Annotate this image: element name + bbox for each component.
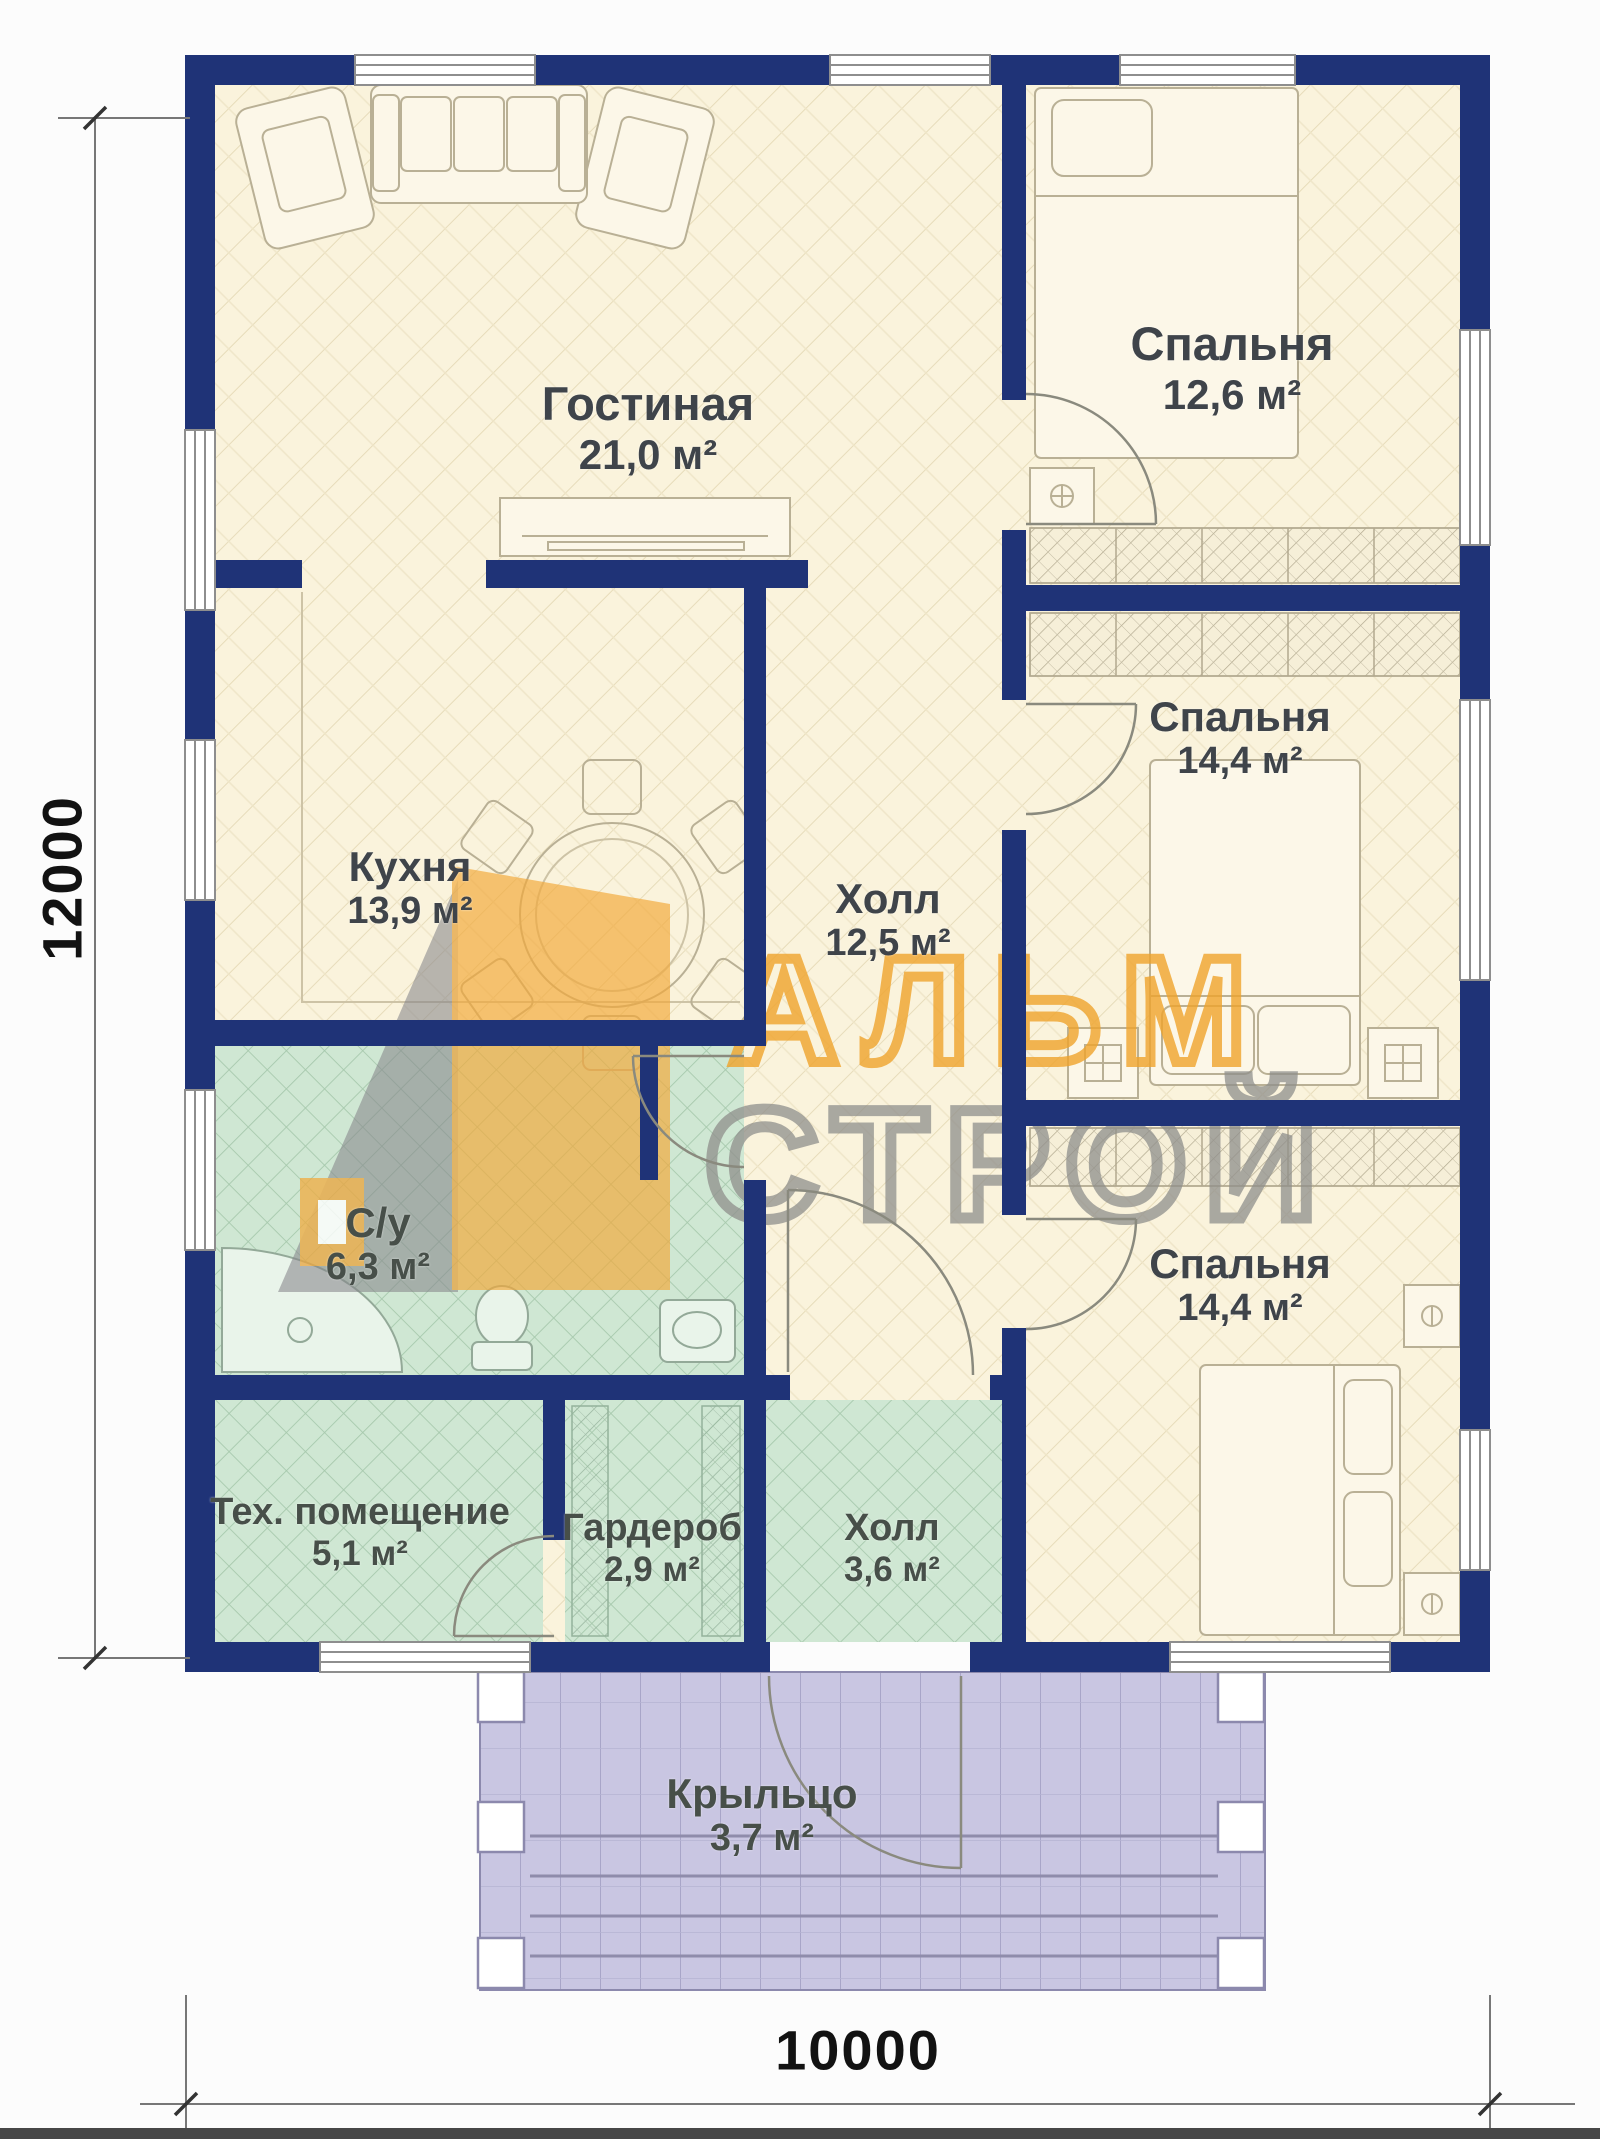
room-label-porch: Крыльцо 3,7 м² — [666, 1770, 857, 1860]
room-label-hall2: Холл 3,6 м² — [844, 1507, 940, 1589]
logo-mark — [452, 866, 670, 1290]
room-name: Тех. помещение — [210, 1491, 510, 1534]
page-edge-rule — [0, 2128, 1600, 2139]
window — [1170, 1642, 1390, 1672]
window — [1120, 55, 1295, 85]
room-area: 3,6 м² — [844, 1550, 940, 1589]
nightstand-icon — [1404, 1285, 1460, 1347]
closet-strip — [1030, 528, 1460, 583]
room-area: 5,1 м² — [312, 1534, 408, 1573]
room-area: 3,7 м² — [710, 1817, 814, 1860]
toilet-icon — [472, 1286, 532, 1370]
window — [1460, 700, 1490, 980]
room-area: 6,3 м² — [326, 1246, 430, 1289]
room-label-wardrobe: Гардероб 2,9 м² — [562, 1507, 742, 1589]
room-name: Спальня — [1130, 318, 1333, 371]
window — [355, 55, 535, 85]
room-name: С/у — [345, 1199, 410, 1246]
sink-icon — [660, 1300, 735, 1362]
sofa-icon — [371, 85, 587, 203]
room-name: Крыльцо — [666, 1770, 857, 1817]
closet-strip — [1030, 613, 1460, 676]
watermark-line1: АЛЬМ — [730, 926, 1270, 1094]
pillow-icon — [1344, 1492, 1392, 1586]
window — [1460, 1430, 1490, 1570]
room-name: Гостиная — [542, 378, 754, 431]
room-name: Спальня — [1149, 1240, 1330, 1287]
room-area: 12,6 м² — [1163, 371, 1301, 418]
room-area: 12,5 м² — [825, 922, 950, 965]
room-label-bedroom-2: Спальня 14,4 м² — [1149, 693, 1330, 783]
dimension-width-label: 10000 — [775, 2018, 941, 2083]
floor-plan-canvas: АЛЬМ СТРОЙ — [0, 0, 1600, 2139]
nightstand-icon — [1404, 1573, 1460, 1635]
room-label-bedroom-1: Спальня 12,6 м² — [1130, 318, 1333, 418]
room-label-bathroom: С/у 6,3 м² — [326, 1199, 430, 1289]
room-name: Гардероб — [562, 1507, 742, 1550]
window — [185, 430, 215, 610]
room-name: Холл — [844, 1507, 939, 1550]
window — [320, 1642, 530, 1672]
pillow-icon — [1258, 1006, 1350, 1074]
room-area: 13,9 м² — [347, 890, 472, 933]
room-name: Кухня — [349, 843, 472, 890]
room-name: Спальня — [1149, 693, 1330, 740]
room-area: 14,4 м² — [1177, 740, 1302, 783]
room-label-bedroom-3: Спальня 14,4 м² — [1149, 1240, 1330, 1330]
nightstand-icon — [1030, 468, 1094, 524]
dimension-height-label: 12000 — [30, 795, 95, 961]
room-label-tech: Тех. помещение 5,1 м² — [210, 1491, 510, 1573]
tv-stand-icon — [500, 498, 790, 556]
room-area: 2,9 м² — [604, 1550, 700, 1589]
room-label-living: Гостиная 21,0 м² — [542, 378, 754, 478]
room-label-hall: Холл 12,5 м² — [825, 875, 950, 965]
window — [1460, 330, 1490, 545]
room-area: 21,0 м² — [579, 431, 717, 478]
room-area: 14,4 м² — [1177, 1287, 1302, 1330]
pillow-icon — [1344, 1380, 1392, 1474]
window — [830, 55, 990, 85]
furniture-bedroom-1 — [1030, 88, 1298, 524]
porch-deck — [480, 1672, 1265, 1990]
nightstand-icon — [1368, 1028, 1438, 1098]
window — [185, 1090, 215, 1250]
room-name: Холл — [835, 875, 940, 922]
window — [185, 740, 215, 900]
room-label-kitchen: Кухня 13,9 м² — [347, 843, 472, 933]
pillow-icon — [1052, 100, 1152, 176]
